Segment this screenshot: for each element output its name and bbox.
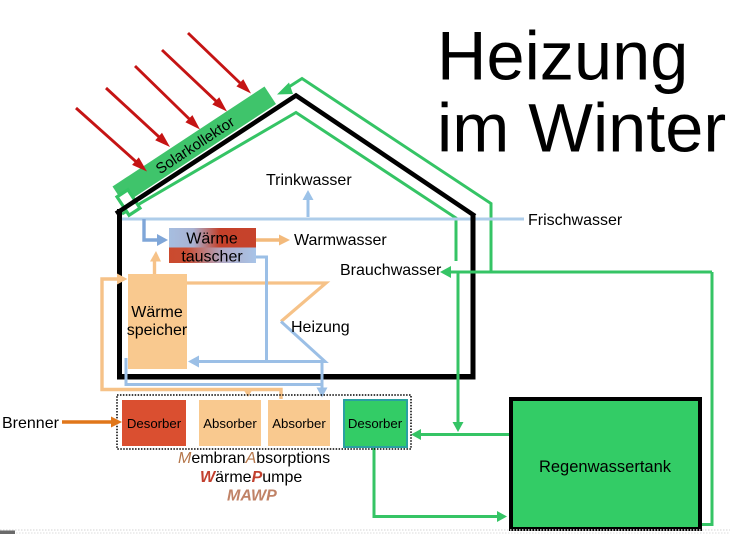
- svg-text:Brenner: Brenner: [2, 415, 60, 432]
- svg-text:MembranAbsorptions: MembranAbsorptions: [178, 450, 330, 467]
- svg-text:Desorber: Desorber: [348, 416, 403, 431]
- svg-text:Trinkwasser: Trinkwasser: [266, 172, 352, 189]
- svg-text:Brauchwasser: Brauchwasser: [340, 262, 442, 279]
- svg-text:MAWP: MAWP: [227, 488, 277, 505]
- svg-text:WärmePumpe: WärmePumpe: [200, 469, 302, 486]
- svg-text:im Winter: im Winter: [437, 90, 726, 167]
- svg-text:Absorber: Absorber: [272, 416, 326, 431]
- svg-text:Absorber: Absorber: [203, 416, 257, 431]
- svg-text:Warmwasser: Warmwasser: [294, 232, 387, 249]
- svg-text:Desorber: Desorber: [127, 416, 182, 431]
- svg-text:Wärme: Wärme: [131, 304, 183, 321]
- svg-text:Frischwasser: Frischwasser: [528, 212, 623, 229]
- svg-text:Wärme: Wärme: [186, 231, 238, 248]
- svg-text:Regenwassertank: Regenwassertank: [539, 458, 672, 476]
- svg-text:tauscher: tauscher: [181, 249, 243, 266]
- svg-text:speicher: speicher: [127, 322, 188, 339]
- svg-text:Heizung: Heizung: [291, 319, 350, 336]
- svg-text:Heizung: Heizung: [437, 18, 688, 95]
